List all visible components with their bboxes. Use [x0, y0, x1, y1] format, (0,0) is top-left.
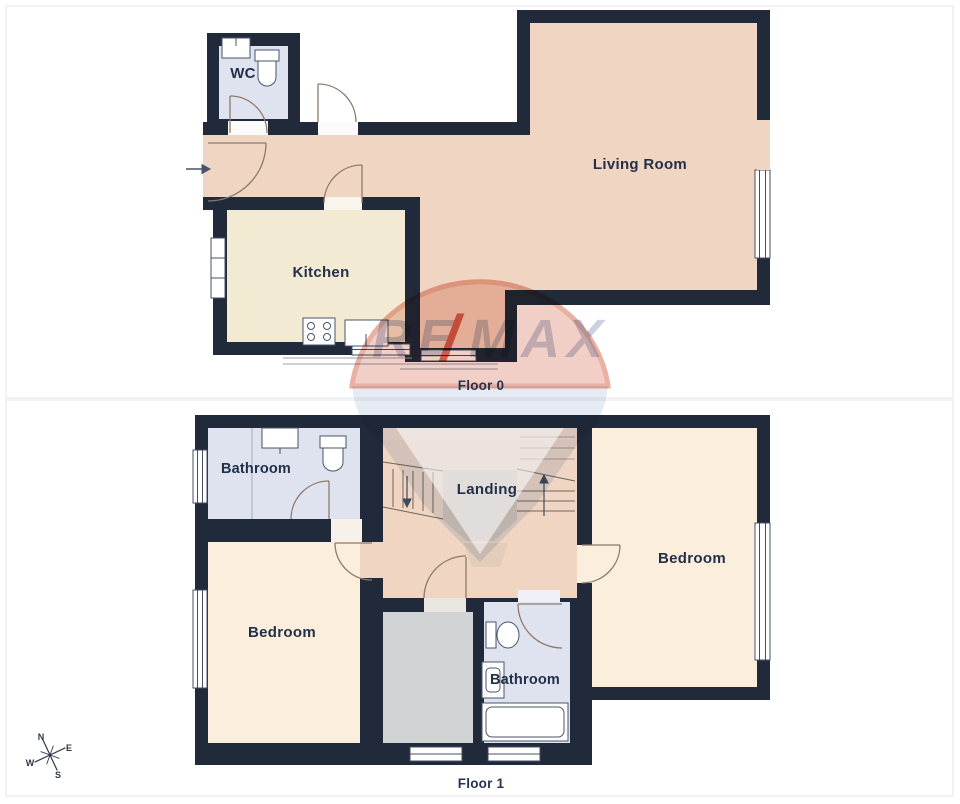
- living-right-window: [755, 170, 770, 258]
- compass-west-label: W: [26, 758, 35, 768]
- bathroom-bottom-label: Bathroom: [490, 672, 560, 688]
- stove-fixture: [303, 318, 335, 345]
- bathroom-top-door-opening: [331, 519, 362, 542]
- kitchen-label: Kitchen: [292, 264, 349, 281]
- bedroom-left-label: Bedroom: [248, 624, 316, 641]
- bedroom-right-door-opening: [577, 545, 592, 583]
- wc-door-opening: [228, 121, 268, 135]
- bathroom-top-window: [193, 450, 207, 503]
- compass-east-label: E: [66, 743, 72, 753]
- bedroom-left-window: [193, 590, 207, 688]
- landing-label: Landing: [457, 481, 517, 498]
- living-room-label: Living Room: [593, 156, 687, 173]
- compass-north-label: N: [38, 732, 45, 742]
- bedroom-left-door-opening: [360, 542, 383, 578]
- bathroom-top-label: Bathroom: [221, 461, 291, 477]
- storage-door-opening: [424, 598, 466, 612]
- back-door-opening: [318, 122, 358, 135]
- bathroom-bottom-door-opening: [518, 590, 560, 602]
- bathroom-top-toilet-fixture: [320, 436, 346, 471]
- bathroom-bottom-window: [488, 747, 540, 761]
- hall-connector-floor: [505, 135, 530, 290]
- storage-room-floor: [383, 612, 473, 743]
- bathtub-fixture: [482, 703, 568, 741]
- watermark-max: MAX: [469, 309, 610, 369]
- bathroom-bottom-toilet-fixture: [486, 622, 519, 648]
- floorplan-canvas: RE / MAX WC Kitchen Living Room Floor 0 …: [0, 0, 960, 804]
- storage-bottom-window: [410, 747, 462, 761]
- bedroom-left-floor: [208, 542, 360, 743]
- kitchen-left-window: [211, 238, 225, 298]
- compass-south-label: S: [55, 770, 61, 780]
- wc-toilet-fixture: [255, 50, 279, 86]
- floorplan-page: RE / MAX WC Kitchen Living Room Floor 0 …: [0, 0, 960, 804]
- floor0-label: Floor 0: [458, 378, 504, 393]
- wc-sink-fixture: [222, 38, 250, 58]
- wc-label: WC: [230, 65, 256, 82]
- floor1-label: Floor 1: [458, 776, 505, 791]
- bedroom-right-label: Bedroom: [658, 550, 726, 567]
- living-wall-recess: [757, 120, 770, 170]
- kitchen-door-opening: [324, 197, 362, 210]
- bedroom-right-window: [755, 523, 770, 660]
- watermark-slash: /: [438, 302, 466, 374]
- remax-watermark-text: RE / MAX: [372, 302, 610, 374]
